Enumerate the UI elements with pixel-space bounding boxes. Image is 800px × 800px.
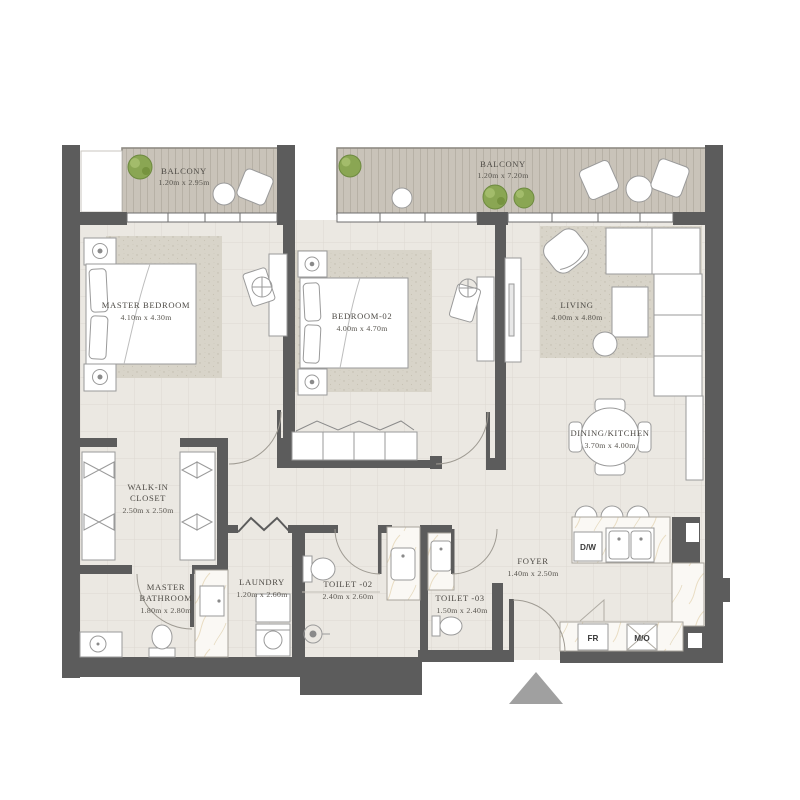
room-dims: 1.80m x 2.80m bbox=[140, 606, 191, 615]
door-leaf bbox=[378, 529, 382, 574]
entry-door-leaf bbox=[509, 599, 514, 652]
balcony-table bbox=[392, 188, 412, 208]
appliance-label: D/W bbox=[580, 543, 596, 552]
room-dims: 1.20m x 2.60m bbox=[236, 590, 287, 599]
room-label: CLOSET bbox=[130, 493, 166, 503]
balcony-table bbox=[213, 183, 235, 205]
room-dims: 1.50m x 2.40m bbox=[436, 606, 487, 615]
appliance-label: FR bbox=[588, 634, 599, 643]
terrace-recess bbox=[81, 151, 122, 212]
pillow bbox=[303, 325, 321, 364]
toilet-icon bbox=[440, 617, 462, 635]
tv-icon bbox=[509, 284, 514, 336]
appliance-label: M/O bbox=[634, 634, 650, 643]
room-label: FOYER bbox=[517, 556, 548, 566]
sink-basin bbox=[609, 531, 629, 559]
toilet-icon bbox=[152, 625, 172, 649]
floor-plan-drawing: BALCONY 1.20m x 2.95m BALCONY 1.20m x 7.… bbox=[0, 0, 800, 800]
room-label: BEDROOM-02 bbox=[332, 311, 392, 321]
entry-arrow-icon bbox=[509, 672, 563, 704]
ceiling-fixture-icon bbox=[252, 277, 272, 297]
plant-icon bbox=[339, 155, 361, 177]
plant-icon bbox=[128, 155, 152, 179]
room-label: BALCONY bbox=[161, 166, 207, 176]
room-label: MASTER bbox=[147, 582, 185, 592]
corner-niche bbox=[688, 633, 702, 648]
room-dims: 2.50m x 2.50m bbox=[122, 506, 173, 515]
window-band bbox=[127, 213, 673, 222]
ceiling-fixture-icon bbox=[459, 279, 477, 297]
room-label: BATHROOM bbox=[139, 593, 192, 603]
room-label: LAUNDRY bbox=[239, 577, 285, 587]
room-dims: 1.20m x 2.95m bbox=[158, 178, 209, 187]
sink-basin bbox=[631, 531, 651, 559]
sofa bbox=[654, 274, 702, 396]
room-label: WALK-IN bbox=[128, 482, 169, 492]
room-dims: 4.00m x 4.70m bbox=[336, 324, 387, 333]
room-label: MASTER BEDROOM bbox=[102, 300, 190, 310]
room-label: TOILET -02 bbox=[323, 579, 372, 589]
kitchen-niche bbox=[686, 523, 699, 542]
room-dims: 3.70m x 4.00m bbox=[584, 441, 635, 450]
kitchen-counter bbox=[672, 563, 704, 626]
side-stool bbox=[593, 332, 617, 356]
room-dims: 4.10m x 4.30m bbox=[120, 313, 171, 322]
wash-basin bbox=[391, 548, 415, 580]
room-label: LIVING bbox=[560, 300, 593, 310]
room-label: DINING/KITCHEN bbox=[570, 428, 649, 438]
washing-machine bbox=[256, 624, 290, 656]
toilet-tank bbox=[432, 616, 440, 636]
wash-basin bbox=[431, 541, 451, 571]
coffee-table bbox=[612, 287, 648, 337]
pillow bbox=[89, 316, 108, 360]
pillow bbox=[303, 283, 321, 322]
tall-cabinet bbox=[686, 396, 703, 480]
room-label: BALCONY bbox=[480, 159, 526, 169]
toilet-icon bbox=[311, 558, 335, 580]
plant-icon bbox=[483, 185, 507, 209]
room-dims: 1.20m x 7.20m bbox=[477, 171, 528, 180]
floor-plan-page: BALCONY 1.20m x 2.95m BALCONY 1.20m x 7.… bbox=[0, 0, 800, 800]
room-label: TOILET -03 bbox=[435, 593, 484, 603]
balcony-table bbox=[626, 176, 652, 202]
room-dims: 2.40m x 2.60m bbox=[322, 592, 373, 601]
room-dims: 1.40m x 2.50m bbox=[507, 569, 558, 578]
door-leaf bbox=[451, 529, 455, 574]
sofa bbox=[606, 228, 700, 274]
room-dims: 4.00m x 4.80m bbox=[551, 313, 602, 322]
plant-icon bbox=[514, 188, 534, 208]
